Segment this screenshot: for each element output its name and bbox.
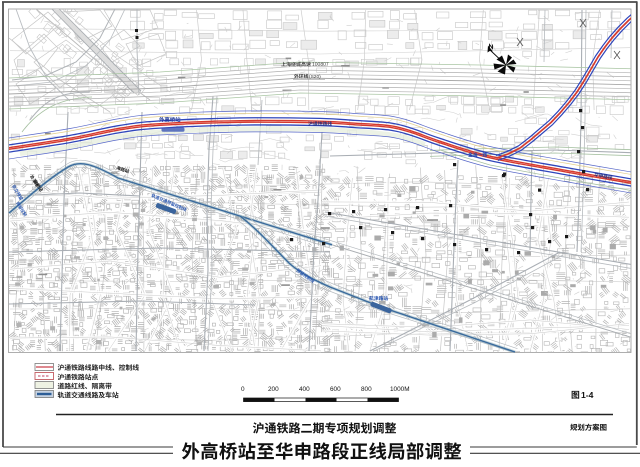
svg-text:800: 800: [361, 386, 372, 393]
svg-text:400: 400: [299, 386, 310, 393]
svg-text:(S20): (S20): [309, 74, 321, 80]
svg-text:0: 0: [241, 386, 245, 393]
svg-text:200: 200: [268, 386, 279, 393]
svg-text:600: 600: [330, 386, 341, 393]
svg-text:1-4: 1-4: [581, 390, 594, 400]
svg-text:100807: 100807: [312, 62, 329, 68]
svg-text:1000M: 1000M: [390, 386, 410, 393]
